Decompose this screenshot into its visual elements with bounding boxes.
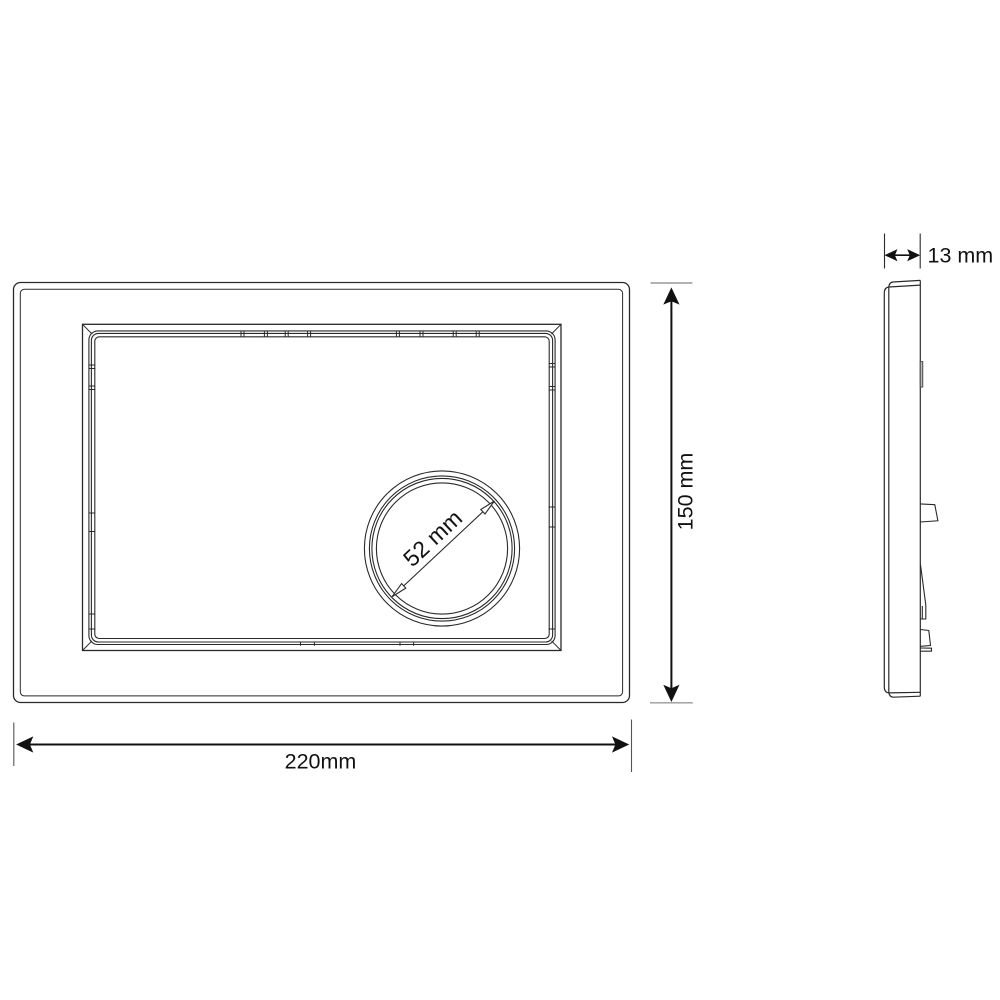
svg-text:150 mm: 150 mm — [674, 453, 698, 531]
svg-text:220mm: 220mm — [285, 750, 357, 774]
svg-text:52 mm: 52 mm — [398, 505, 467, 572]
svg-text:13 mm: 13 mm — [928, 244, 994, 268]
